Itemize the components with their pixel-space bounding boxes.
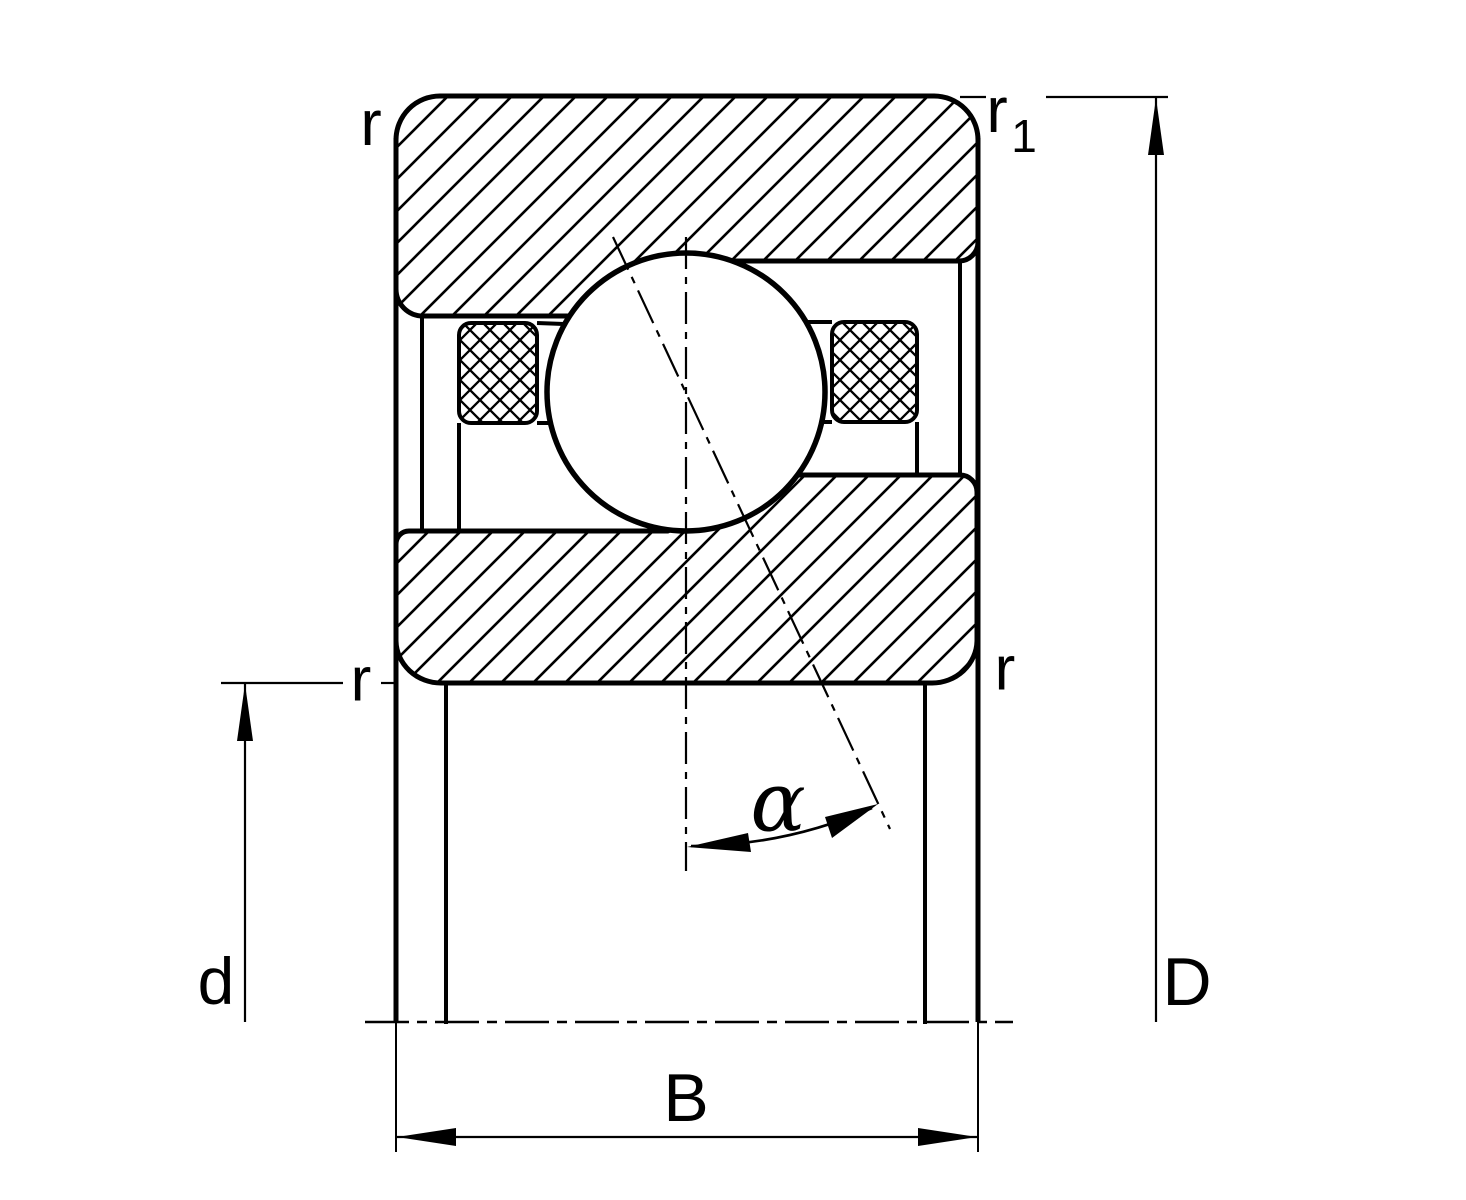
- cage-left-block: [459, 323, 537, 423]
- bore-diameter-label: d: [198, 944, 235, 1018]
- radius-r1-subscript: 1: [1011, 110, 1037, 162]
- radius-r1-base: r: [986, 74, 1007, 146]
- cage-right-block: [832, 322, 917, 422]
- width-label: B: [663, 1060, 708, 1136]
- cage-left-pocket-top-edge: [537, 323, 564, 324]
- outside-diameter-label: D: [1162, 944, 1211, 1020]
- radius-label-mid-left: r: [351, 646, 372, 715]
- bearing-section-drawing: α d D B r r 1 r r: [0, 0, 1466, 1200]
- radius-label-top-left: r: [360, 87, 381, 159]
- contact-angle-label: α: [750, 756, 805, 851]
- radius-label-mid-right: r: [995, 635, 1016, 704]
- bearing-drawing-canvas: α d D B r r 1 r r: [0, 0, 1466, 1200]
